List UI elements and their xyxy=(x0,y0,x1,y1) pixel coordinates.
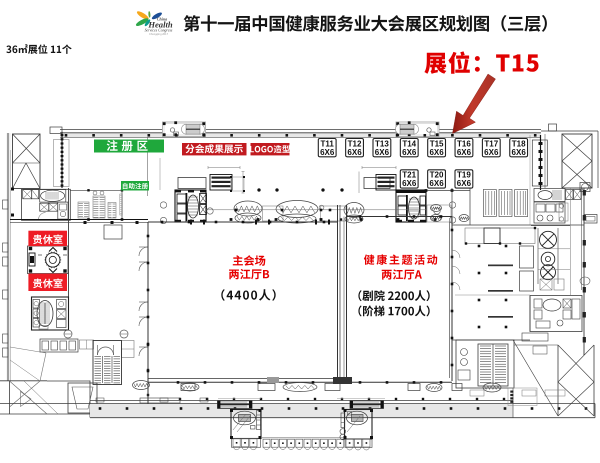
svg-text:6X6: 6X6 xyxy=(402,148,417,157)
svg-text:Services Congress: Services Congress xyxy=(145,28,173,32)
svg-text:6X6: 6X6 xyxy=(320,148,335,157)
svg-text:6X6: 6X6 xyxy=(512,148,527,157)
svg-text:6X6: 6X6 xyxy=(347,148,362,157)
svg-text:6X6: 6X6 xyxy=(429,148,444,157)
svg-text:Chongqing 2017: Chongqing 2017 xyxy=(149,32,169,36)
svg-text:6X6: 6X6 xyxy=(429,179,444,188)
svg-text:6X6: 6X6 xyxy=(402,179,417,188)
svg-text:6X6: 6X6 xyxy=(484,148,499,157)
svg-text:6X6: 6X6 xyxy=(457,179,472,188)
svg-text:6X6: 6X6 xyxy=(457,148,472,157)
svg-text:6X6: 6X6 xyxy=(375,148,390,157)
